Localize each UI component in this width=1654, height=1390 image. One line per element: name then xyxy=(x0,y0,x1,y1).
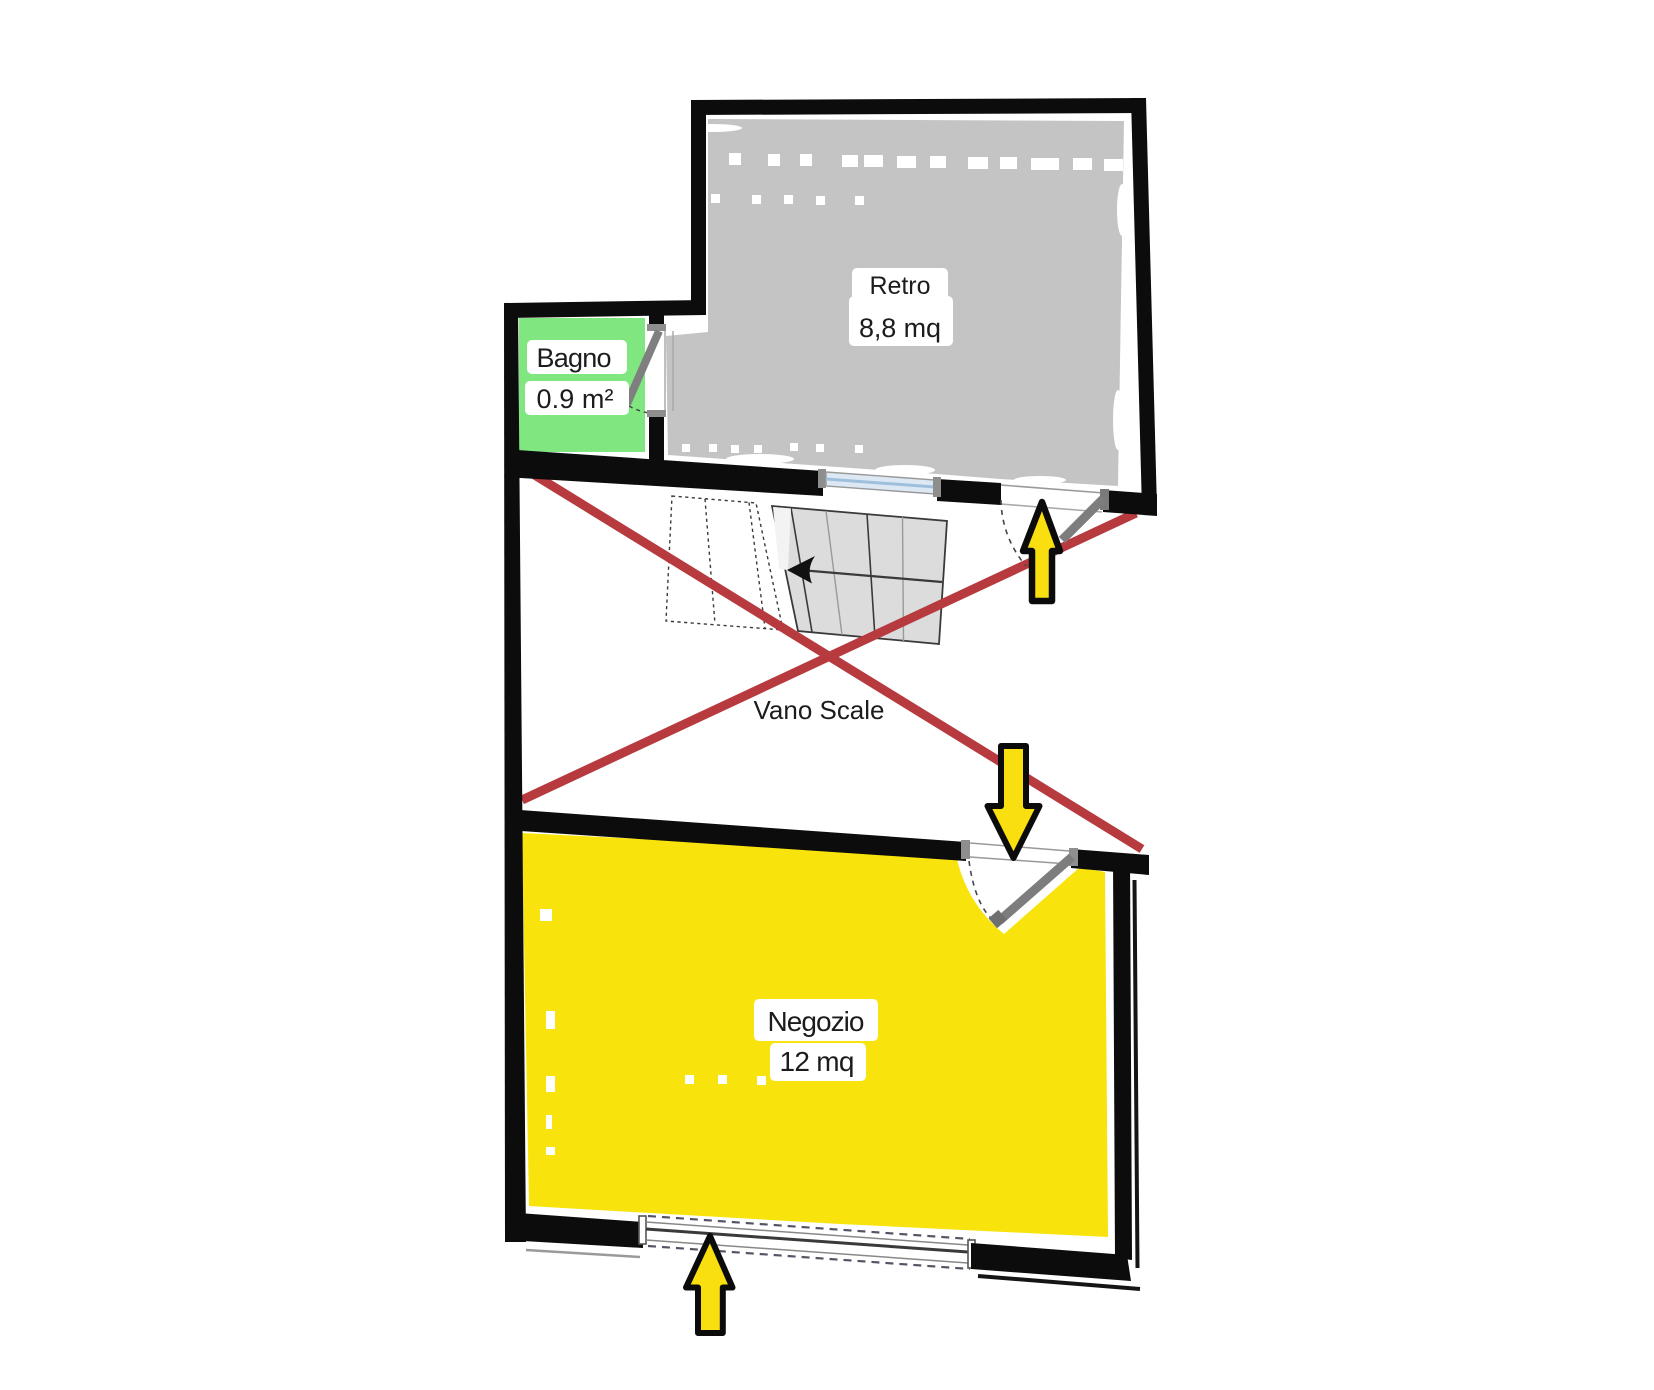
svg-text:Vano Scale: Vano Scale xyxy=(754,695,885,725)
svg-text:8,8 mq: 8,8 mq xyxy=(859,313,941,343)
svg-text:12 mq: 12 mq xyxy=(780,1046,855,1077)
svg-text:Bagno: Bagno xyxy=(537,343,612,373)
svg-text:0.9 m²: 0.9 m² xyxy=(537,384,614,414)
svg-text:Negozio: Negozio xyxy=(768,1006,865,1037)
svg-text:Retro: Retro xyxy=(870,272,931,300)
